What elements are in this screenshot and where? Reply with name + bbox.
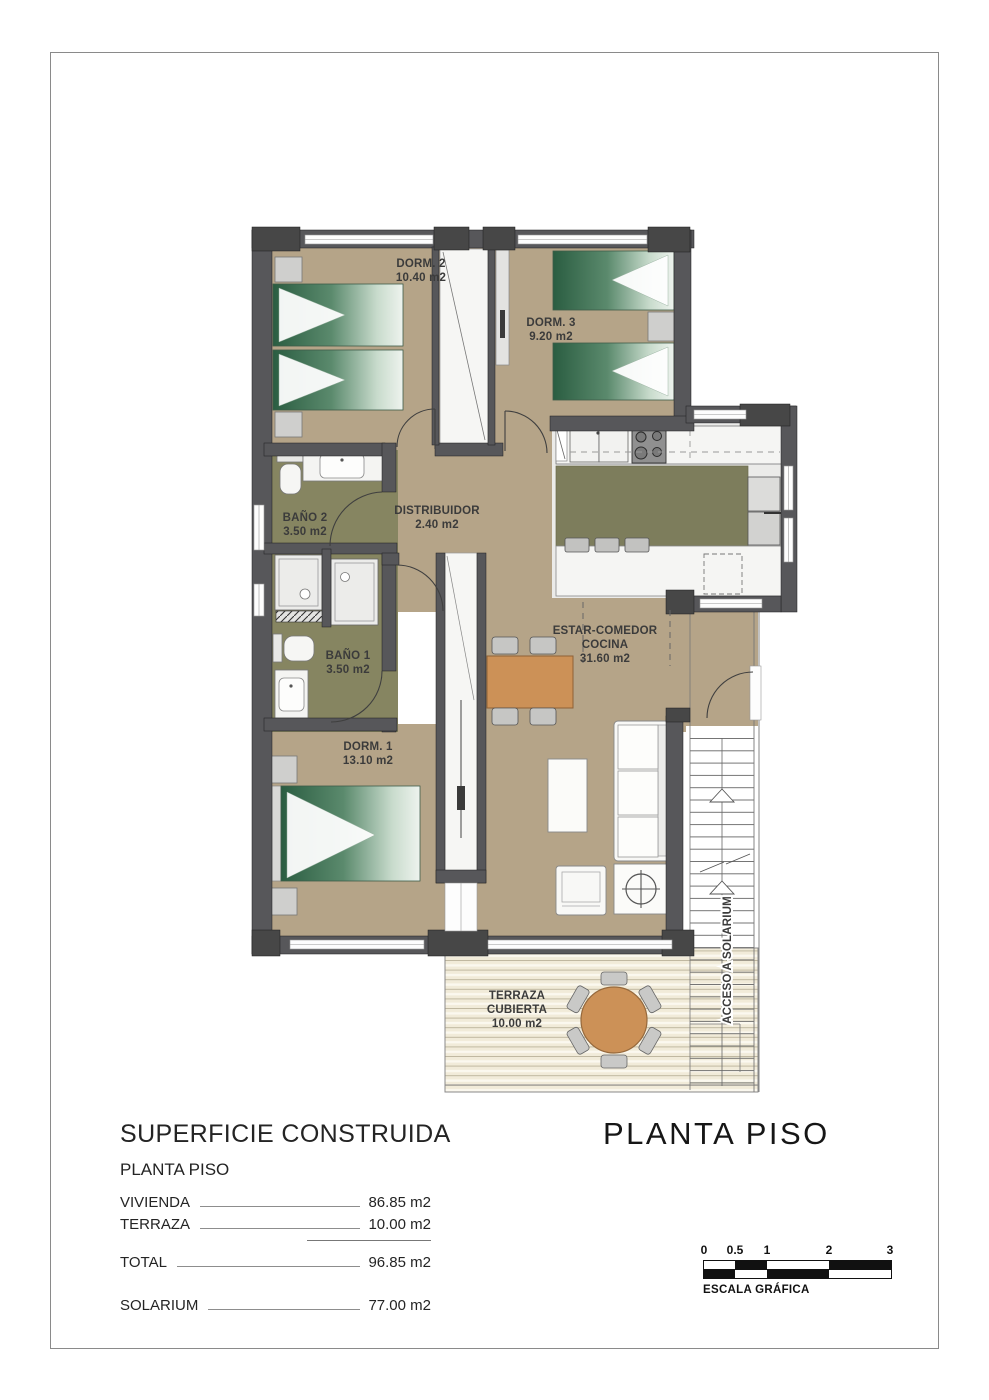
scale-tick: 3 (887, 1243, 894, 1257)
room-area-dorm3: 9.20 m2 (529, 331, 573, 343)
leader-line (177, 1265, 360, 1267)
window-icon (518, 235, 647, 244)
scale-caption: ESCALA GRÁFICA (703, 1284, 810, 1296)
room-area-dorm1: 13.10 m2 (343, 755, 393, 767)
plan-title: PLANTA PISO (603, 1116, 830, 1152)
leader-line (200, 1227, 360, 1229)
room-label-dorm1: DORM. 1 (343, 741, 393, 753)
sum-separator (307, 1240, 431, 1241)
room-label-dorm2: DORM. 2 (396, 258, 445, 270)
summary-subtitle: PLANTA PISO (120, 1160, 431, 1180)
chair-icon (530, 637, 556, 654)
bed-icon (553, 343, 674, 400)
window-icon (305, 235, 433, 244)
nightstand-icon (648, 312, 674, 341)
stool-icon (625, 538, 649, 552)
surface-summary: SUPERFICIE CONSTRUIDA PLANTA PISO VIVIEN… (120, 1120, 431, 1314)
window-icon (254, 505, 264, 550)
window-icon (254, 584, 264, 616)
washbasin-icon (320, 454, 364, 478)
row-label: SOLARIUM (120, 1297, 198, 1314)
window-icon (784, 518, 793, 562)
room-label-terraza: TERRAZA (489, 990, 545, 1002)
room-area-estar: 31.60 m2 (580, 653, 630, 665)
kitchen-island (556, 466, 748, 546)
row-label: TOTAL (120, 1254, 167, 1271)
sliding-glass-door-icon (488, 940, 672, 949)
toilet-icon (277, 453, 303, 494)
shower-icon (275, 555, 322, 610)
room-area-dorm2: 10.40 m2 (396, 272, 446, 284)
hatched-wall (276, 611, 322, 622)
fridge-icon (748, 477, 782, 545)
sofa-icon (614, 721, 670, 861)
chair-icon (492, 637, 518, 654)
window-icon (700, 599, 762, 608)
armchair-icon (556, 866, 606, 915)
room-area-terraza: 10.00 m2 (492, 1018, 542, 1030)
coffee-table-icon (548, 759, 587, 832)
drawing-sheet: DORM. 2 10.40 m2 DORM. 3 9.20 m2 BAÑO 2 … (0, 0, 989, 1400)
scale-tick: 0.5 (727, 1243, 744, 1257)
window-icon (784, 466, 793, 510)
toilet-icon (273, 634, 314, 662)
chair-icon (492, 708, 518, 725)
stove-icon (632, 427, 666, 463)
room-label-terraza-2: CUBIERTA (487, 1004, 547, 1016)
dining-table-icon (487, 656, 573, 708)
bed-icon (273, 284, 403, 346)
bed-icon (553, 251, 674, 310)
stool-icon (565, 538, 589, 552)
room-label-estar: ESTAR-COMEDOR (553, 625, 658, 637)
summary-row: VIVIENDA 86.85 m2 (120, 1194, 431, 1211)
room-label-dorm3: DORM. 3 (526, 317, 575, 329)
row-label: TERRAZA (120, 1216, 190, 1233)
washbasin-icon (275, 670, 308, 718)
stairs-label: ACCESO A SOLARIUM (722, 896, 734, 1024)
kitchen (556, 426, 783, 596)
row-value: 86.85 m2 (368, 1194, 431, 1211)
shower-icon (331, 559, 378, 625)
room-label-bano1: BAÑO 1 (326, 649, 371, 662)
side-table-icon (614, 864, 668, 914)
summary-row-total: TOTAL 96.85 m2 (120, 1254, 431, 1271)
double-bed-icon (272, 786, 420, 881)
sink-icon (570, 429, 599, 462)
nightstand-icon (275, 257, 302, 282)
row-value: 10.00 m2 (368, 1216, 431, 1233)
entry-door-slot (750, 666, 761, 720)
room-label-distribuidor: DISTRIBUIDOR (394, 505, 480, 517)
room-area-bano2: 3.50 m2 (283, 526, 327, 538)
bar-counter (556, 546, 783, 596)
sink-icon (599, 429, 628, 462)
scale-tick: 0 (701, 1243, 708, 1257)
row-value: 77.00 m2 (368, 1297, 431, 1314)
room-label-estar-2: COCINA (582, 639, 629, 651)
row-label: VIVIENDA (120, 1194, 190, 1211)
window-icon (290, 940, 424, 949)
graphic-scale: 0 0.5 1 2 3 ESCALA GRÁFICA (698, 1243, 898, 1299)
window-icon (694, 410, 746, 419)
row-value: 96.85 m2 (368, 1254, 431, 1271)
window-icon (445, 883, 477, 931)
summary-title: SUPERFICIE CONSTRUIDA (120, 1120, 431, 1149)
leader-line (208, 1308, 360, 1310)
scale-tick: 2 (826, 1243, 833, 1257)
leader-line (200, 1205, 360, 1207)
scale-tick: 1 (764, 1243, 771, 1257)
sliding-door-icon (496, 250, 509, 365)
bed-icon (273, 350, 403, 410)
room-area-bano1: 3.50 m2 (326, 664, 370, 676)
chair-icon (530, 708, 556, 725)
scale-bar (703, 1260, 892, 1279)
stool-icon (595, 538, 619, 552)
room-area-distribuidor: 2.40 m2 (415, 519, 459, 531)
summary-row-solarium: SOLARIUM 77.00 m2 (120, 1297, 431, 1314)
room-label-bano2: BAÑO 2 (283, 511, 328, 524)
summary-row: TERRAZA 10.00 m2 (120, 1216, 431, 1233)
nightstand-icon (275, 412, 302, 437)
